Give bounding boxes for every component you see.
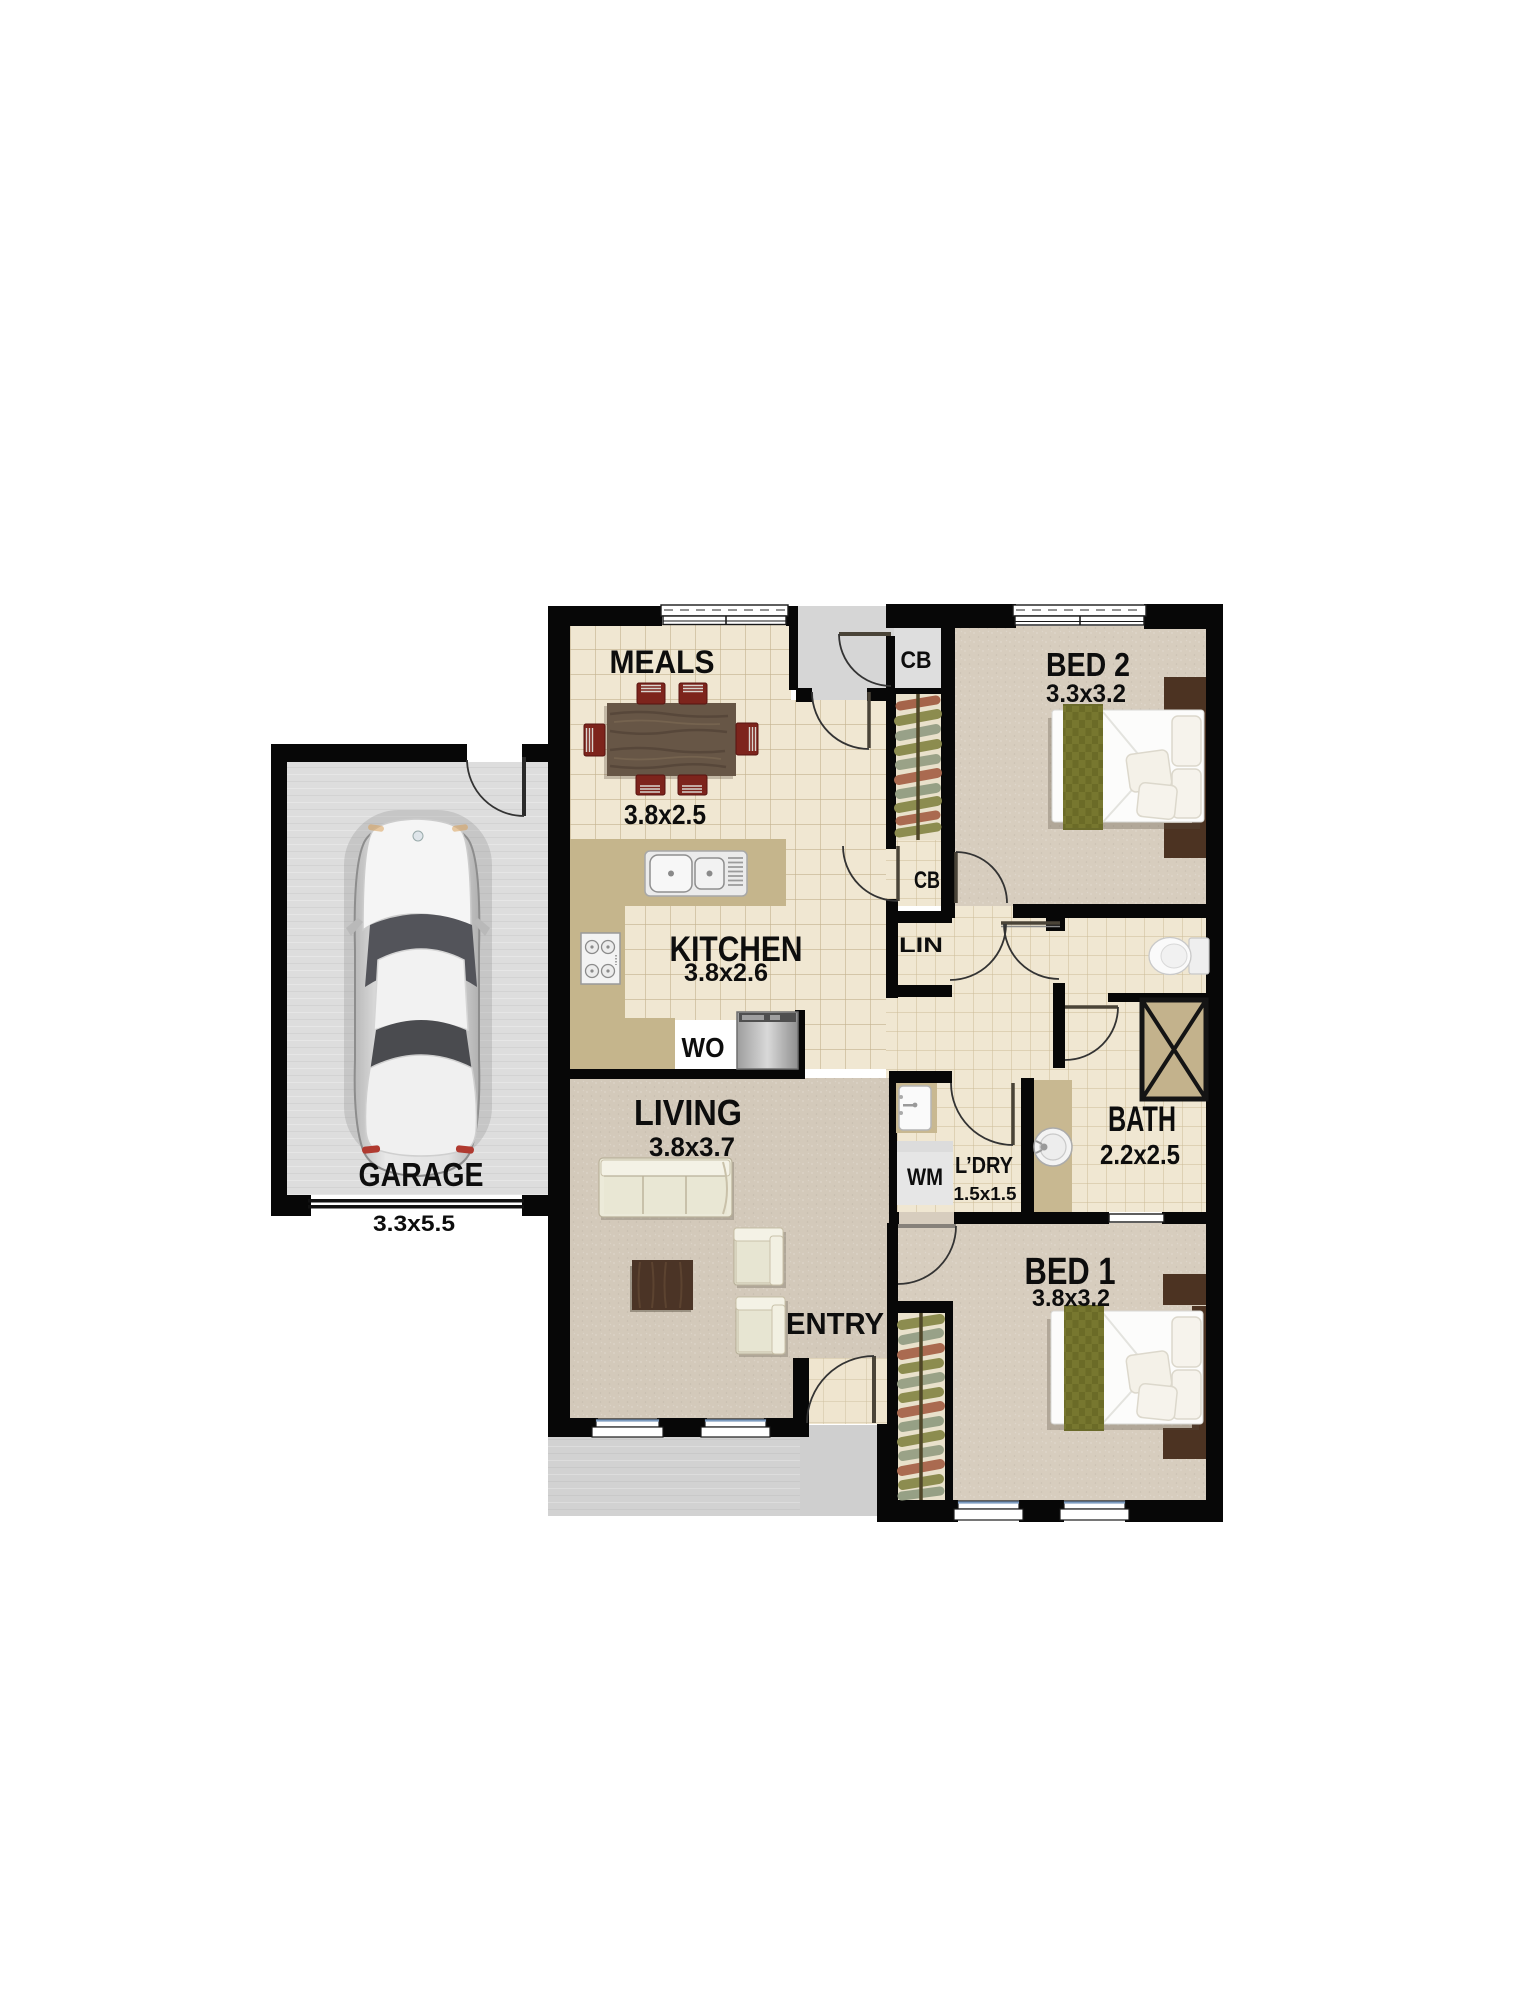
svg-text:3.8x3.2: 3.8x3.2 [1032, 1285, 1110, 1312]
svg-text:2.2x2.5: 2.2x2.5 [1100, 1139, 1180, 1170]
svg-text:CB: CB [914, 867, 940, 894]
svg-text:CB: CB [901, 647, 932, 674]
svg-text:L’DRY: L’DRY [955, 1152, 1013, 1178]
svg-text:LIVING: LIVING [634, 1092, 742, 1133]
svg-text:3.3x5.5: 3.3x5.5 [373, 1211, 455, 1236]
svg-text:MEALS: MEALS [610, 644, 715, 680]
svg-text:GARAGE: GARAGE [359, 1156, 484, 1193]
svg-text:ENTRY: ENTRY [786, 1306, 884, 1341]
svg-text:WM: WM [907, 1164, 943, 1191]
svg-text:LIN: LIN [899, 934, 943, 957]
svg-text:3.8x2.6: 3.8x2.6 [684, 959, 768, 987]
svg-text:3.8x2.5: 3.8x2.5 [624, 799, 706, 830]
svg-text:WO: WO [682, 1032, 725, 1063]
svg-text:BATH: BATH [1108, 1100, 1176, 1139]
svg-text:BED 2: BED 2 [1046, 646, 1130, 683]
svg-text:3.8x3.7: 3.8x3.7 [649, 1132, 735, 1162]
svg-text:1.5x1.5: 1.5x1.5 [954, 1184, 1017, 1204]
svg-text:3.3x3.2: 3.3x3.2 [1046, 680, 1126, 708]
